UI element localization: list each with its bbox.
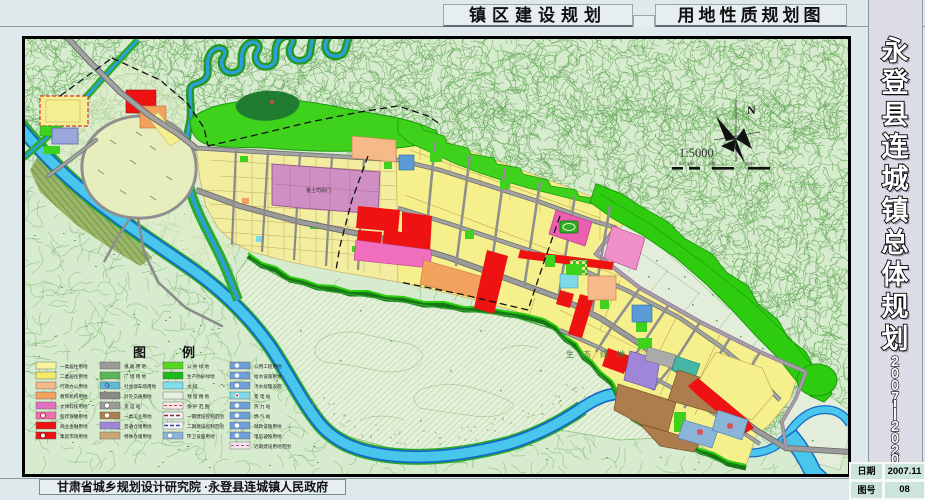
svg-text:生态绿地: 生态绿地 (566, 349, 634, 359)
svg-text:医疗保健用地: 医疗保健用地 (60, 413, 88, 420)
svg-text:商业金融用地: 商业金融用地 (60, 423, 88, 430)
svg-text:N: N (747, 103, 756, 117)
svg-text:邮政设施用地: 邮政设施用地 (254, 423, 282, 430)
svg-text:一期建设控制范围: 一期建设控制范围 (187, 413, 224, 420)
svg-text:一类居住用地: 一类居住用地 (60, 363, 88, 370)
svg-text:特殊仓储用地: 特殊仓储用地 (124, 433, 152, 440)
svg-text:连: 连 (882, 131, 910, 162)
svg-text:200: 200 (708, 161, 716, 166)
svg-text:污水处理设施: 污水处理设施 (254, 383, 282, 390)
svg-text:生产防护绿地: 生产防护绿地 (187, 373, 215, 380)
svg-text:环卫设施用地: 环卫设施用地 (187, 433, 215, 440)
svg-text:集贸市场用地: 集贸市场用地 (60, 433, 88, 440)
svg-text:水 域: 水 域 (187, 383, 198, 389)
svg-text:文体科技用地: 文体科技用地 (60, 403, 88, 410)
svg-text:社会停车场用地: 社会停车场用地 (124, 383, 157, 390)
svg-text:划: 划 (882, 324, 909, 354)
svg-text:规: 规 (882, 292, 909, 322)
svg-text:广 场 用 地: 广 场 用 地 (124, 373, 147, 380)
svg-text:永: 永 (881, 36, 909, 66)
svg-text:预 留 用 地: 预 留 用 地 (187, 393, 210, 400)
svg-text:1:5000: 1:5000 (679, 146, 714, 160)
svg-text:二期建设控制范围: 二期建设控制范围 (187, 423, 224, 430)
svg-text:热 力 站: 热 力 站 (254, 403, 271, 410)
svg-text:货 运 站: 货 运 站 (124, 403, 141, 410)
svg-text:道 路 用 地: 道 路 用 地 (124, 363, 147, 370)
svg-text:二类居住用地: 二类居住用地 (60, 373, 88, 380)
svg-text:总: 总 (882, 228, 909, 258)
svg-text:100: 100 (687, 161, 695, 166)
svg-text:城: 城 (882, 164, 909, 194)
svg-text:400m: 400m (744, 161, 756, 166)
svg-text:一类工业用地: 一类工业用地 (124, 413, 152, 420)
svg-text:行政办公用地: 行政办公用地 (60, 383, 88, 390)
svg-text:镇: 镇 (882, 196, 909, 226)
svg-text:普通仓储用地: 普通仓储用地 (124, 423, 152, 430)
svg-text:燃 气 站: 燃 气 站 (254, 413, 271, 420)
svg-text:教育机构用地: 教育机构用地 (60, 393, 88, 400)
svg-text:50: 50 (679, 161, 685, 166)
svg-text:鲁土司衙门: 鲁土司衙门 (306, 187, 331, 194)
svg-text:体: 体 (882, 260, 910, 290)
svg-text:公 共 绿 地: 公 共 绿 地 (187, 363, 210, 370)
svg-text:变 电 站: 变 电 站 (254, 393, 271, 400)
svg-text:图例: 图例 (133, 345, 231, 360)
svg-text:公用工程用地: 公用工程用地 (254, 363, 282, 370)
svg-text:近期建设用地范围: 近期建设用地范围 (254, 443, 291, 450)
svg-text:电信设施用地: 电信设施用地 (254, 433, 282, 440)
svg-text:保 护 范 围: 保 护 范 围 (187, 403, 210, 410)
svg-text:对外交通用地: 对外交通用地 (124, 393, 152, 400)
svg-text:登: 登 (881, 68, 910, 98)
svg-text:县: 县 (882, 100, 909, 130)
svg-text:给水设施用地: 给水设施用地 (254, 373, 282, 380)
svg-text:P: P (105, 384, 108, 389)
